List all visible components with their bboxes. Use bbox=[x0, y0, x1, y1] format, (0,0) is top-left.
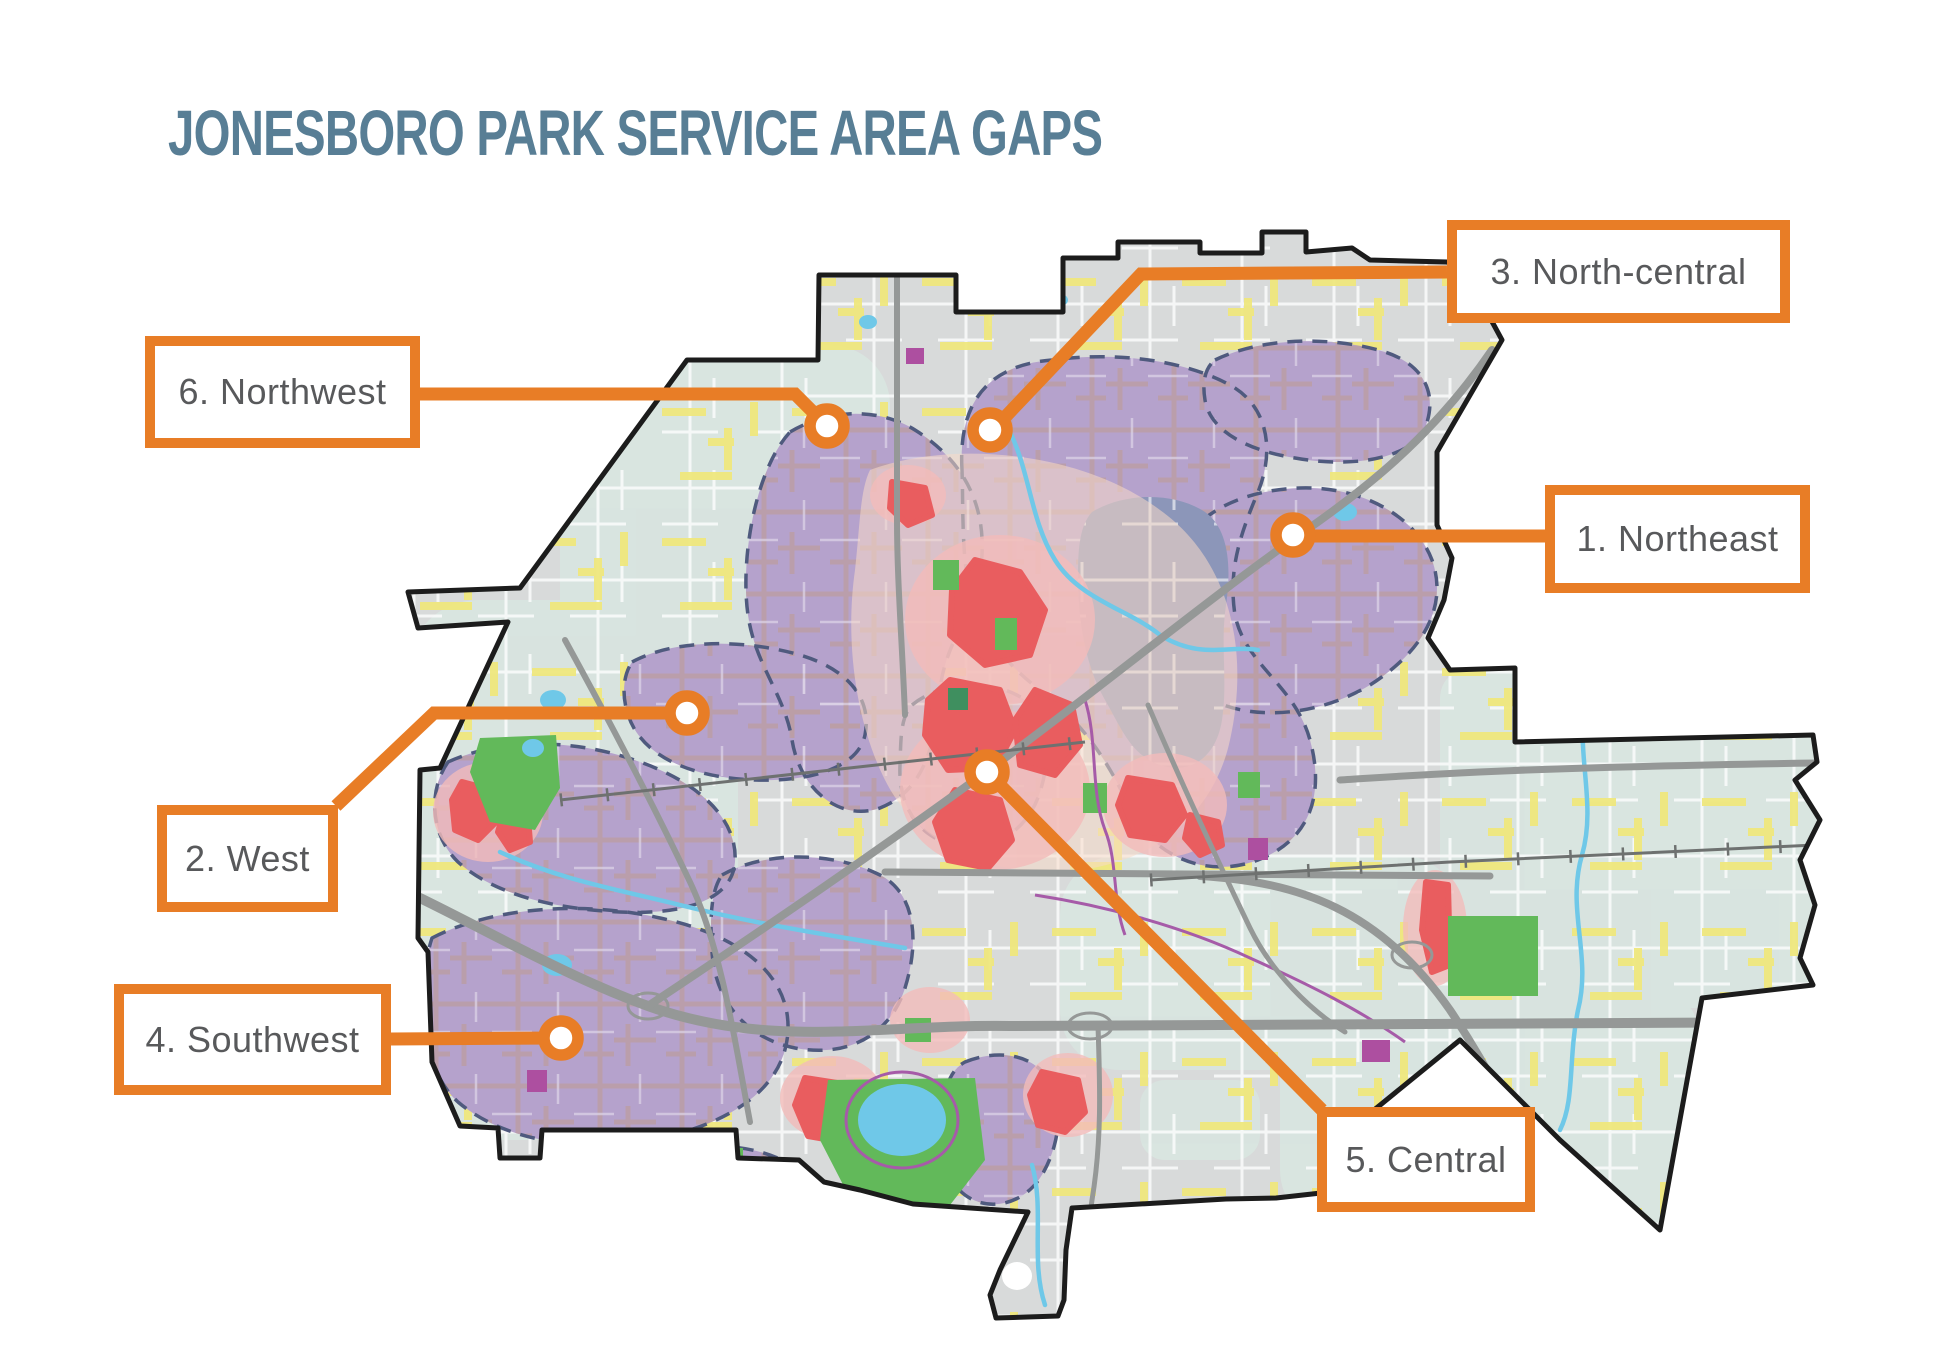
callout-north-central: 3. North-central bbox=[1447, 220, 1790, 323]
marker-west bbox=[670, 696, 704, 730]
callout-central: 5. Central bbox=[1317, 1107, 1535, 1212]
marker-northwest bbox=[810, 409, 844, 443]
callout-southwest: 4. Southwest bbox=[114, 984, 391, 1095]
marker-northeast bbox=[1276, 518, 1310, 552]
callout-west-label: 2. West bbox=[185, 838, 310, 880]
jonesboro-park-gaps-infographic: JONESBORO PARK SERVICE AREA GAPS 1. Nort… bbox=[0, 0, 1950, 1350]
city-map bbox=[0, 0, 1950, 1350]
callout-southwest-label: 4. Southwest bbox=[145, 1019, 359, 1061]
connector-southwest bbox=[391, 1038, 561, 1039]
boundary-loop-hole bbox=[1002, 1262, 1032, 1290]
callout-northwest: 6. Northwest bbox=[145, 336, 420, 448]
callout-northeast-label: 1. Northeast bbox=[1576, 518, 1778, 560]
callout-central-label: 5. Central bbox=[1345, 1139, 1506, 1181]
callout-northwest-label: 6. Northwest bbox=[178, 371, 386, 413]
marker-central bbox=[970, 755, 1004, 789]
marker-southwest bbox=[544, 1021, 578, 1055]
callout-west: 2. West bbox=[157, 805, 338, 912]
callout-north-central-label: 3. North-central bbox=[1490, 251, 1746, 293]
page-title: JONESBORO PARK SERVICE AREA GAPS bbox=[168, 96, 1102, 170]
callout-northeast: 1. Northeast bbox=[1545, 485, 1810, 593]
marker-north-central bbox=[973, 413, 1007, 447]
